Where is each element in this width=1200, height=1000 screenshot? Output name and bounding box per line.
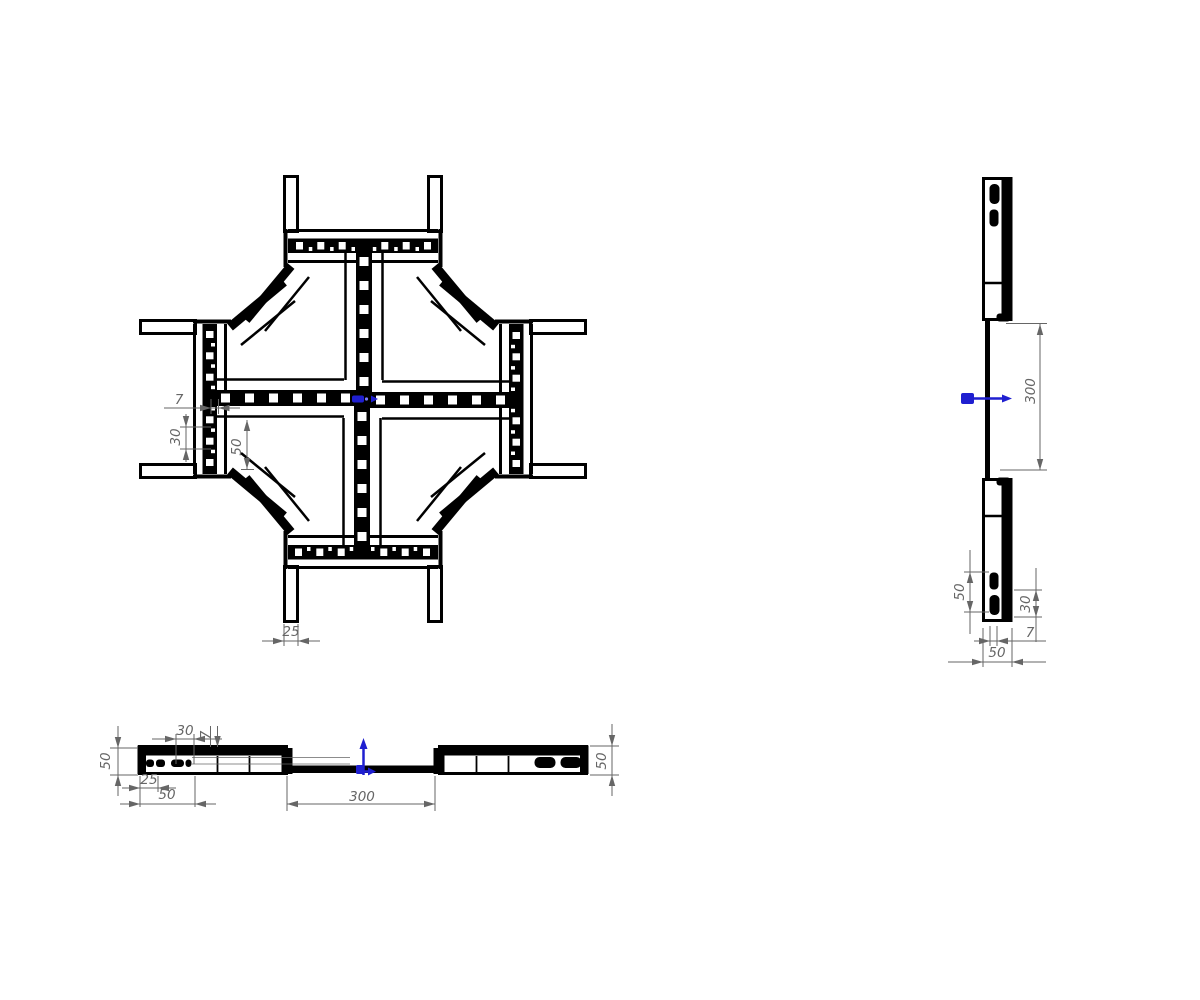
side-dim-50-width: 50: [988, 645, 1005, 661]
side-dim-300: 300: [1023, 378, 1039, 404]
front-dim-7: 7: [198, 730, 214, 739]
front-dim-30: 30: [176, 723, 193, 739]
front-dim-300: 300: [349, 789, 375, 805]
plan-dim-50: 50: [229, 438, 245, 455]
front-dim-50-right: 50: [594, 752, 610, 769]
plan-view: 7 30 50 25: [141, 177, 586, 647]
side-dim-50-slots: 50: [952, 583, 968, 600]
front-view: 50 30 7 25 50 300 50: [98, 723, 619, 811]
side-dim-7: 7: [1026, 625, 1035, 641]
cad-drawing: 7 30 50 25: [0, 0, 1200, 1000]
plan-dim-7: 7: [175, 392, 184, 408]
front-dim-50-left: 50: [98, 752, 114, 769]
plan-dim-25: 25: [282, 624, 299, 640]
front-dim-50-slot: 50: [158, 787, 175, 803]
side-dim-30: 30: [1018, 595, 1034, 612]
plan-dim-30: 30: [168, 428, 184, 445]
front-dim-25: 25: [140, 772, 157, 788]
drawing-canvas: 7 30 50 25: [0, 0, 1200, 1000]
side-view: 300 50 30 7 50: [948, 178, 1047, 668]
